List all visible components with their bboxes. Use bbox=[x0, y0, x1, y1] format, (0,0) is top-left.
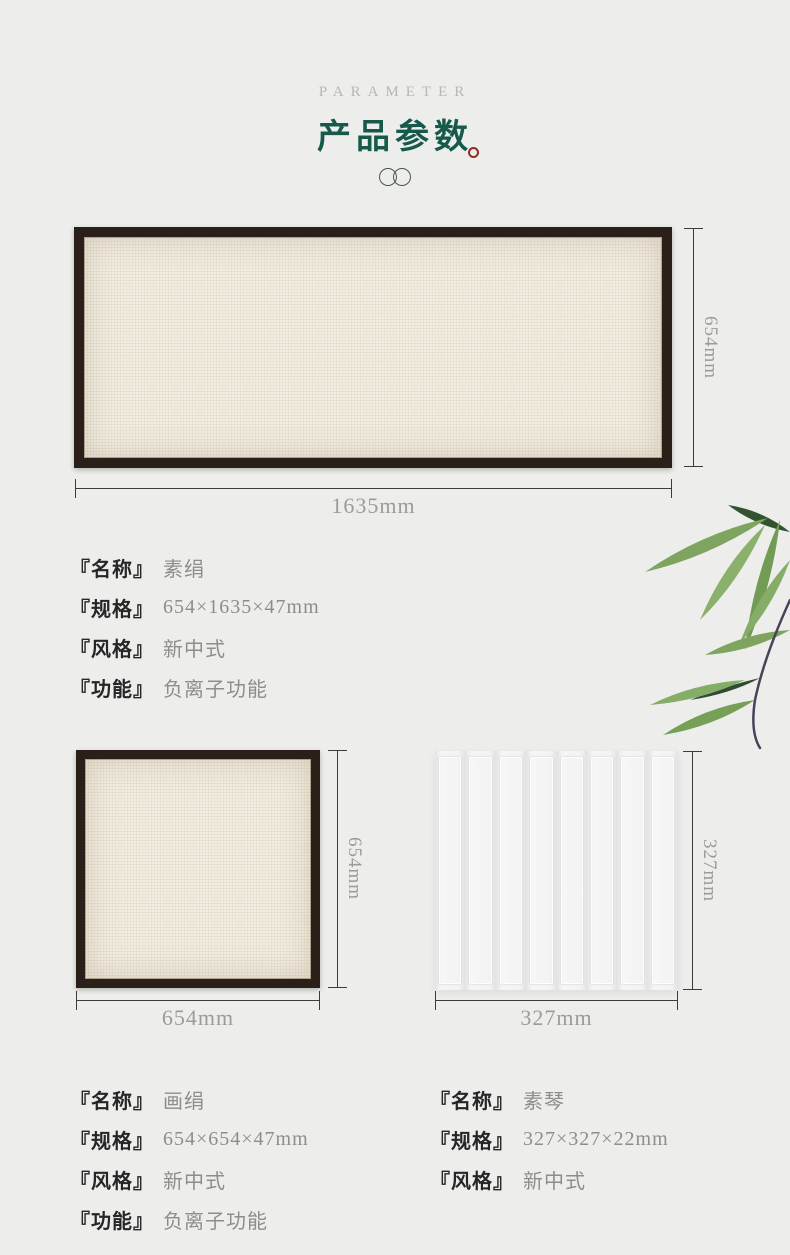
eyebrow-text: PARAMETER bbox=[0, 84, 790, 101]
spec-label: 『名称』 bbox=[70, 553, 154, 582]
height-dim-label: 654mm bbox=[699, 228, 721, 467]
spec-row: 『风格』 新中式 bbox=[70, 1159, 309, 1199]
seal-ring-icon bbox=[468, 147, 479, 158]
rib-slat bbox=[435, 751, 465, 990]
rib-slat bbox=[557, 751, 587, 990]
spec-row: 『功能』 负离子功能 bbox=[70, 667, 320, 707]
double-circle-icon bbox=[0, 168, 790, 186]
rib-slat bbox=[617, 751, 647, 990]
spec-value: 654×654×47mm bbox=[163, 1128, 309, 1151]
width-dimension-large: 1635mm bbox=[75, 479, 672, 527]
spec-label: 『名称』 bbox=[430, 1085, 514, 1114]
rib-slat bbox=[465, 751, 495, 990]
spec-row: 『风格』 新中式 bbox=[70, 627, 320, 667]
spec-label: 『规格』 bbox=[70, 593, 154, 622]
page-title: 产品参数 bbox=[317, 119, 473, 156]
spec-row: 『规格』 654×1635×47mm bbox=[70, 587, 320, 627]
width-dimension-ribbed: 327mm bbox=[435, 991, 678, 1039]
spec-label: 『名称』 bbox=[70, 1085, 154, 1114]
bamboo-leaves-icon bbox=[628, 497, 790, 752]
spec-value: 327×327×22mm bbox=[523, 1128, 669, 1151]
spec-row: 『功能』 负离子功能 bbox=[70, 1199, 309, 1239]
spec-label: 『功能』 bbox=[70, 673, 154, 702]
rib-slat bbox=[587, 751, 617, 990]
spec-label: 『风格』 bbox=[430, 1165, 514, 1194]
product-parameter-sheet: PARAMETER 产品参数 654mm 1635mm 『名称』 素绢 『规格』 bbox=[0, 0, 790, 1255]
panel-su-qin-image bbox=[435, 751, 678, 990]
product-specs-su-qin: 『名称』 素琴 『规格』 327×327×22mm 『风格』 新中式 bbox=[430, 1079, 669, 1199]
spec-value: 负离子功能 bbox=[163, 673, 268, 702]
circle-right-icon bbox=[393, 168, 411, 186]
spec-label: 『风格』 bbox=[70, 1165, 154, 1194]
height-dimension-square: 654mm bbox=[328, 750, 372, 988]
spec-value: 新中式 bbox=[163, 633, 226, 662]
panel-hua-juan-image bbox=[76, 750, 320, 988]
parameter-header: PARAMETER 产品参数 bbox=[0, 84, 790, 186]
spec-row: 『规格』 327×327×22mm bbox=[430, 1119, 669, 1159]
height-dim-label: 654mm bbox=[343, 750, 365, 988]
spec-row: 『名称』 画绢 bbox=[70, 1079, 309, 1119]
spec-value: 负离子功能 bbox=[163, 1205, 268, 1234]
product-specs-hua-juan: 『名称』 画绢 『规格』 654×654×47mm 『风格』 新中式 『功能』 … bbox=[70, 1079, 309, 1239]
rib-slat bbox=[526, 751, 556, 990]
spec-label: 『风格』 bbox=[70, 633, 154, 662]
linen-canvas bbox=[84, 237, 662, 458]
spec-row: 『风格』 新中式 bbox=[430, 1159, 669, 1199]
spec-row: 『规格』 654×654×47mm bbox=[70, 1119, 309, 1159]
width-dim-label: 654mm bbox=[76, 1005, 320, 1031]
height-dimension-ribbed: 327mm bbox=[683, 751, 727, 990]
spec-label: 『规格』 bbox=[430, 1125, 514, 1154]
rib-slat bbox=[496, 751, 526, 990]
page-title-wrap: 产品参数 bbox=[317, 109, 473, 158]
spec-label: 『功能』 bbox=[70, 1205, 154, 1234]
spec-row: 『名称』 素绢 bbox=[70, 547, 320, 587]
spec-value: 素绢 bbox=[163, 553, 205, 582]
width-dim-label: 327mm bbox=[435, 1005, 678, 1031]
spec-value: 素琴 bbox=[523, 1085, 565, 1114]
spec-value: 新中式 bbox=[523, 1165, 586, 1194]
rib-slat bbox=[648, 751, 678, 990]
product-specs-su-juan: 『名称』 素绢 『规格』 654×1635×47mm 『风格』 新中式 『功能』… bbox=[70, 547, 320, 707]
spec-value: 654×1635×47mm bbox=[163, 596, 320, 619]
height-dimension-large: 654mm bbox=[684, 228, 728, 467]
spec-row: 『名称』 素琴 bbox=[430, 1079, 669, 1119]
panel-su-juan-image bbox=[74, 227, 672, 468]
width-dim-label: 1635mm bbox=[75, 493, 672, 519]
spec-label: 『规格』 bbox=[70, 1125, 154, 1154]
linen-canvas bbox=[85, 759, 311, 979]
spec-value: 新中式 bbox=[163, 1165, 226, 1194]
height-dim-label: 327mm bbox=[698, 751, 720, 990]
width-dimension-square: 654mm bbox=[76, 991, 320, 1039]
spec-value: 画绢 bbox=[163, 1085, 205, 1114]
